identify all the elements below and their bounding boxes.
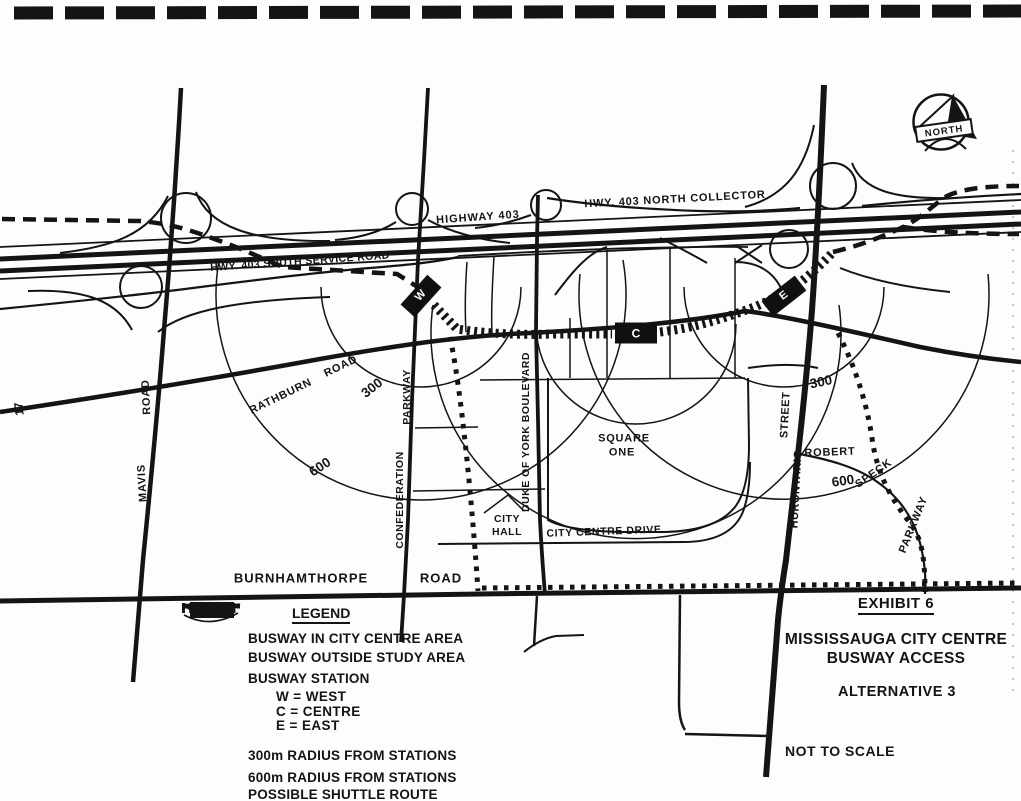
hwy403-carriageway-east [0,224,1021,271]
ramp-curve [158,297,330,332]
burnhamthorpe-road-label: ROAD [420,572,462,585]
exhibit-number-text: EXHIBIT 6 [858,595,934,615]
duke-of-york-label: DUKE OF YORK BOULEVARD [521,352,532,512]
map-linework: NORTH [0,0,1021,801]
city-hall-roof [484,495,524,513]
legend-item-radius-300: 300m RADIUS FROM STATIONS [180,733,510,763]
scanned-exhibit-page: NORTH 17 HIGHWAY 403 HWY. 403 NORTH COLL… [0,0,1021,801]
legend-item-label: 300m RADIUS FROM STATIONS [248,748,457,763]
map-title-line2: BUSWAY ACCESS [774,650,1018,668]
map-title-line1: MISSISSAUGA CITY CENTRE [774,631,1018,649]
alternative-label: ALTERNATIVE 3 [797,684,997,700]
legend-item-busway-station: BUSWAY STATION [180,667,510,689]
mavis-road-label: ROAD [141,379,154,415]
block-street [492,256,494,333]
shuttle-route-west-leg [450,337,478,591]
burnhamthorpe-label: BURNHAMTHORPE [234,572,368,585]
ramp-curve [852,163,945,198]
north-indicator [914,95,978,150]
page-number: 17 [12,402,26,417]
legend-item-label: POSSIBLE SHUTTLE ROUTE [248,787,438,801]
legend-item-shuttle: POSSIBLE SHUTTLE ROUTE [180,785,510,801]
legend-item-label: BUSWAY IN CITY CENTRE AREA [248,631,463,646]
legend-item-busway-city-centre: BUSWAY IN CITY CENTRE AREA [180,629,510,648]
legend-item-busway-outside: BUSWAY OUTSIDE STUDY AREA [180,648,510,667]
street-below-burnhamthorpe [534,596,537,646]
mavis-label: MAVIS [137,464,150,503]
ramp-loop [531,190,561,220]
square-one-label-line1: SQUARE [598,434,650,445]
legend-code-east: E = EAST [276,718,510,733]
hurontario-street-line [766,85,824,777]
station-centre: C [615,323,657,344]
legend-item-radius-600: 600m RADIUS FROM STATIONS [180,763,510,785]
legend-title-text: LEGEND [292,605,350,624]
ramp-curve [555,247,607,295]
ramp-loop [161,193,211,243]
square-one-block [548,378,749,532]
ramp-curve [840,268,950,292]
page-binding-dashes [14,11,1021,13]
confederation-label: CONFEDERATION [395,451,406,548]
confederation-parkway-line [401,88,428,642]
exhibit-number: EXHIBIT 6 [816,595,976,612]
legend-item-label: BUSWAY STATION [248,671,370,686]
block-street [465,262,467,332]
rathburn-road-line [0,311,1021,412]
legend-code-west: W = WEST [276,689,510,704]
legend-item-label: 600m RADIUS FROM STATIONS [248,770,457,785]
legend: LEGEND BUSWAY IN CITY CENTRE AREA BUSWAY… [180,601,510,801]
street-below-burnhamthorpe [685,734,769,736]
scale-note: NOT TO SCALE [785,743,905,759]
robert-speck-parkway-line [794,453,925,594]
city-hall-label-line1: CITY [494,514,520,525]
block-street [415,427,478,428]
busway-city-centre [660,299,772,332]
confederation-parkway-label: PARKWAY [402,369,413,424]
ramp-curve [196,192,330,241]
square-one-label-line2: ONE [609,448,635,459]
legend-item-label: BUSWAY OUTSIDE STUDY AREA [248,650,465,665]
radius-label-e600: 600 [831,473,855,490]
street-below-burnhamthorpe [679,595,685,730]
legend-code-centre: C = CENTRE [276,704,510,719]
city-hall-label-line2: HALL [492,527,522,538]
legend-title: LEGEND [292,605,510,621]
robert-label: ROBERT [804,447,856,460]
ramp-crossing [735,245,762,263]
